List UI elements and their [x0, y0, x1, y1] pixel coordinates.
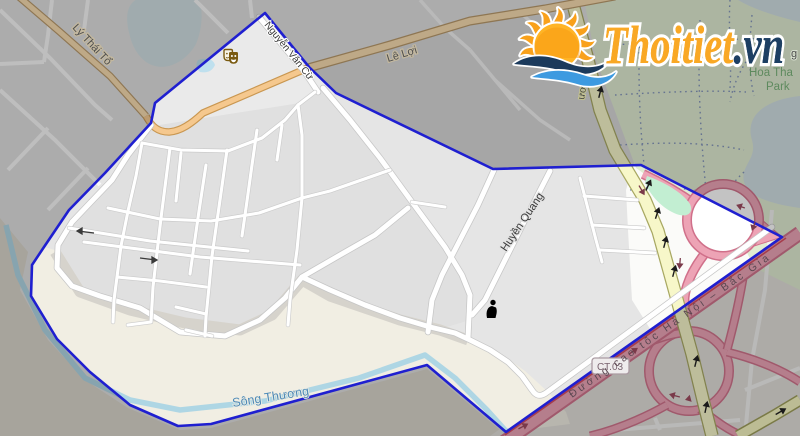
svg-text:Thoitiet.vn: Thoitiet.vn: [603, 15, 784, 75]
svg-text:g: g: [791, 48, 797, 60]
svg-text:Park: Park: [766, 81, 790, 93]
